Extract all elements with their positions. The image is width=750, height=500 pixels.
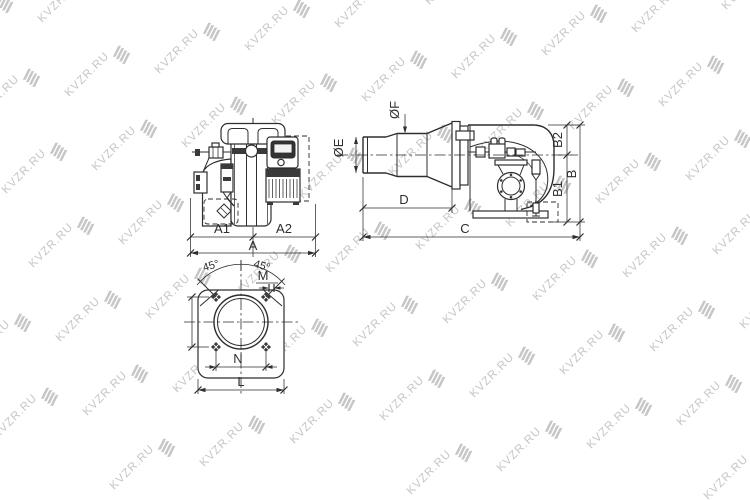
dim-label-oe: ØE [331,138,346,157]
dim-label-d: D [399,192,408,207]
housing [468,125,554,218]
dim-oe: ØE [331,137,358,173]
dim-label-b: B [564,170,579,179]
cone-bottom [427,177,452,188]
flange-view: 45° 45° M [184,258,298,396]
dim-label-c: C [460,221,469,236]
side-view: ØE ØF D [331,101,585,241]
photocell-assembly [532,160,540,216]
solenoid-valve [489,144,505,158]
front-hinge-circle [246,145,258,157]
burner-dimension-drawing-page: KVZR.RUKVZR.RUKVZR.RUKVZR.RUKVZR.RUKVZR.… [0,0,750,500]
technical-drawing: A1 A2 A [0,0,750,500]
dim-of: ØF [387,101,407,134]
dim-c: C [360,213,584,241]
left-bracket [194,172,207,193]
dim-label-of: ØF [387,101,402,119]
control-button [278,159,284,165]
dim-label-angle-left: 45° [201,258,220,274]
fuel-train [468,138,536,165]
flange-hinge [456,131,474,140]
dim-label-b2: B2 [550,132,565,148]
oil-pump [498,165,525,211]
dim-label-m: M [258,268,269,283]
pump-box [209,147,223,158]
front-view: A1 A2 A [187,118,319,257]
dim-label-a1: A1 [214,221,230,236]
dim-label-a2: A2 [276,221,292,236]
dim-m: M [256,268,284,292]
dim-label-n: N [233,351,242,366]
dim-label-b1: B1 [550,181,565,197]
dim-label-l: L [237,374,244,389]
dim-label-a: A [249,238,258,253]
cone-top [427,123,452,134]
